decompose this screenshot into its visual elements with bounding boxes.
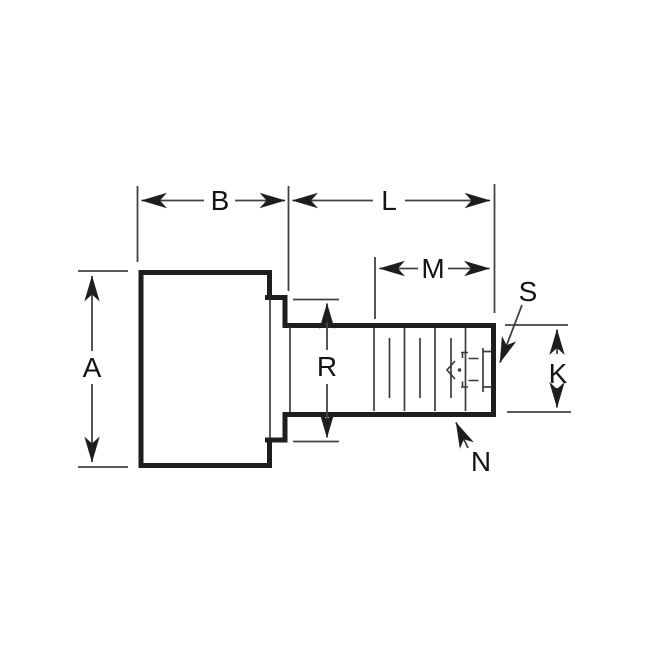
dim-label-s: S [519, 276, 538, 307]
dim-label-l: L [381, 185, 397, 216]
dim-label-n: N [471, 446, 491, 477]
dimension-B: B [138, 185, 289, 291]
thread-lines [374, 328, 492, 411]
dimension-R: R [293, 300, 339, 442]
leader-S: S [500, 276, 537, 363]
dim-label-m: M [421, 253, 444, 284]
technical-drawing-canvas: A B L M R [0, 0, 670, 670]
dimension-L: L [293, 184, 495, 313]
dimension-A: A [78, 271, 128, 467]
dim-label-k: K [549, 358, 568, 389]
leader-line [456, 423, 468, 449]
leader-N: N [456, 423, 491, 478]
dim-label-b: B [211, 185, 230, 216]
dimension-M: M [375, 253, 490, 319]
dimension-K: K [505, 325, 571, 412]
dim-label-r: R [317, 351, 337, 382]
head-outline [141, 273, 270, 466]
part-dimension-diagram: A B L M R [0, 0, 670, 670]
leader-line [500, 305, 522, 363]
socket-dashed-outline [461, 353, 479, 388]
dim-label-a: A [83, 352, 102, 383]
socket-center-dot [458, 368, 461, 371]
